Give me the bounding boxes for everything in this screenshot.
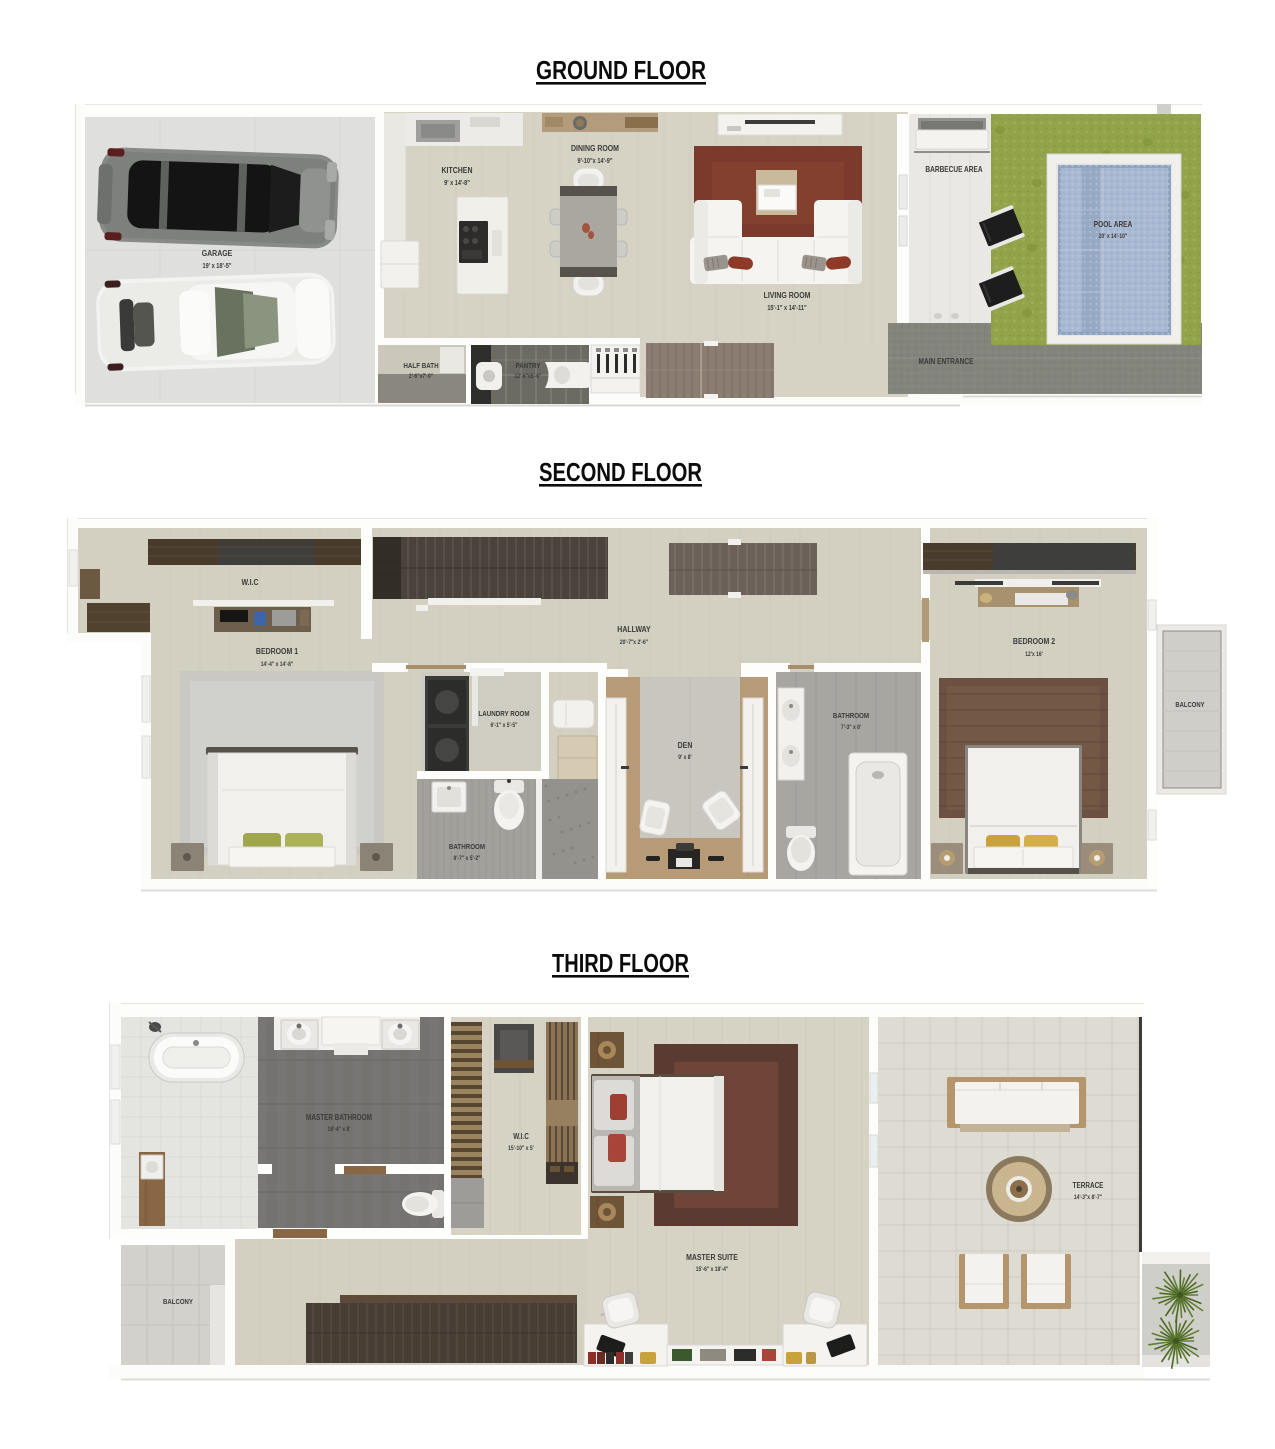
svg-text:6'-1" x 5'-5": 6'-1" x 5'-5" xyxy=(491,723,518,730)
svg-text:BARBECUE AREA: BARBECUE AREA xyxy=(925,164,983,174)
svg-text:BATHROOM: BATHROOM xyxy=(449,844,485,852)
svg-text:BEDROOM 1: BEDROOM 1 xyxy=(256,646,299,656)
svg-text:GARAGE: GARAGE xyxy=(202,248,233,258)
svg-text:7'-3" x 8': 7'-3" x 8' xyxy=(841,725,862,732)
svg-text:15'-10" x 5': 15'-10" x 5' xyxy=(508,1146,534,1153)
svg-text:THIRD FLOOR: THIRD FLOOR xyxy=(552,948,689,978)
svg-text:14'-4" x 14'-8": 14'-4" x 14'-8" xyxy=(261,662,294,669)
svg-text:KITCHEN: KITCHEN xyxy=(442,165,473,175)
svg-text:20' x 14'-10": 20' x 14'-10" xyxy=(1099,234,1128,241)
svg-text:POOL AREA: POOL AREA xyxy=(1094,219,1133,229)
svg-text:14'-3"x 8'-7": 14'-3"x 8'-7" xyxy=(1074,1195,1103,1202)
svg-text:HALLWAY: HALLWAY xyxy=(617,624,651,634)
svg-text:2'-6"x7'-9": 2'-6"x7'-9" xyxy=(409,374,433,381)
svg-text:W.I.C: W.I.C xyxy=(241,577,258,587)
svg-text:MAIN ENTRANCE: MAIN ENTRANCE xyxy=(919,356,974,366)
svg-text:SECOND FLOOR: SECOND FLOOR xyxy=(539,457,702,487)
svg-text:9' x 14'-8": 9' x 14'-8" xyxy=(444,179,470,187)
svg-text:MASTER SUITE: MASTER SUITE xyxy=(686,1252,738,1262)
svg-text:BALCONY: BALCONY xyxy=(1175,702,1205,710)
svg-text:PANTRY: PANTRY xyxy=(516,363,541,371)
svg-text:DINING ROOM: DINING ROOM xyxy=(571,143,619,153)
svg-text:9' x 8': 9' x 8' xyxy=(678,755,692,762)
svg-text:TERRACE: TERRACE xyxy=(1073,1181,1104,1190)
svg-text:GROUND FLOOR: GROUND FLOOR xyxy=(536,55,706,85)
svg-text:12'x 16': 12'x 16' xyxy=(1025,652,1043,659)
svg-text:W.I.C: W.I.C xyxy=(513,1132,529,1141)
svg-text:BATHROOM: BATHROOM xyxy=(833,713,869,721)
svg-text:15'-1" x 14'-11": 15'-1" x 14'-11" xyxy=(767,304,806,312)
svg-text:19' x 18'-5": 19' x 18'-5" xyxy=(203,262,232,270)
svg-text:16'-4" x 8': 16'-4" x 8' xyxy=(328,1127,351,1134)
svg-text:LAUNDRY ROOM: LAUNDRY ROOM xyxy=(478,711,529,719)
svg-text:DEN: DEN xyxy=(678,740,693,750)
svg-text:MASTER BATHROOM: MASTER BATHROOM xyxy=(306,1113,372,1122)
svg-text:BALCONY: BALCONY xyxy=(163,1299,193,1307)
svg-text:20'-7"x 2'-6": 20'-7"x 2'-6" xyxy=(620,640,649,647)
svg-text:HALF BATH: HALF BATH xyxy=(403,363,438,371)
svg-text:15'-6" x 18'-4": 15'-6" x 18'-4" xyxy=(696,1267,729,1274)
svg-text:9'-10"x 14'-9": 9'-10"x 14'-9" xyxy=(577,157,612,165)
svg-text:LIVING ROOM: LIVING ROOM xyxy=(764,290,811,300)
svg-text:BEDROOM 2: BEDROOM 2 xyxy=(1013,636,1056,646)
svg-text:12'-6"x5'-6": 12'-6"x5'-6" xyxy=(515,374,542,381)
svg-text:8'-7" x 5'-2": 8'-7" x 5'-2" xyxy=(454,856,481,863)
